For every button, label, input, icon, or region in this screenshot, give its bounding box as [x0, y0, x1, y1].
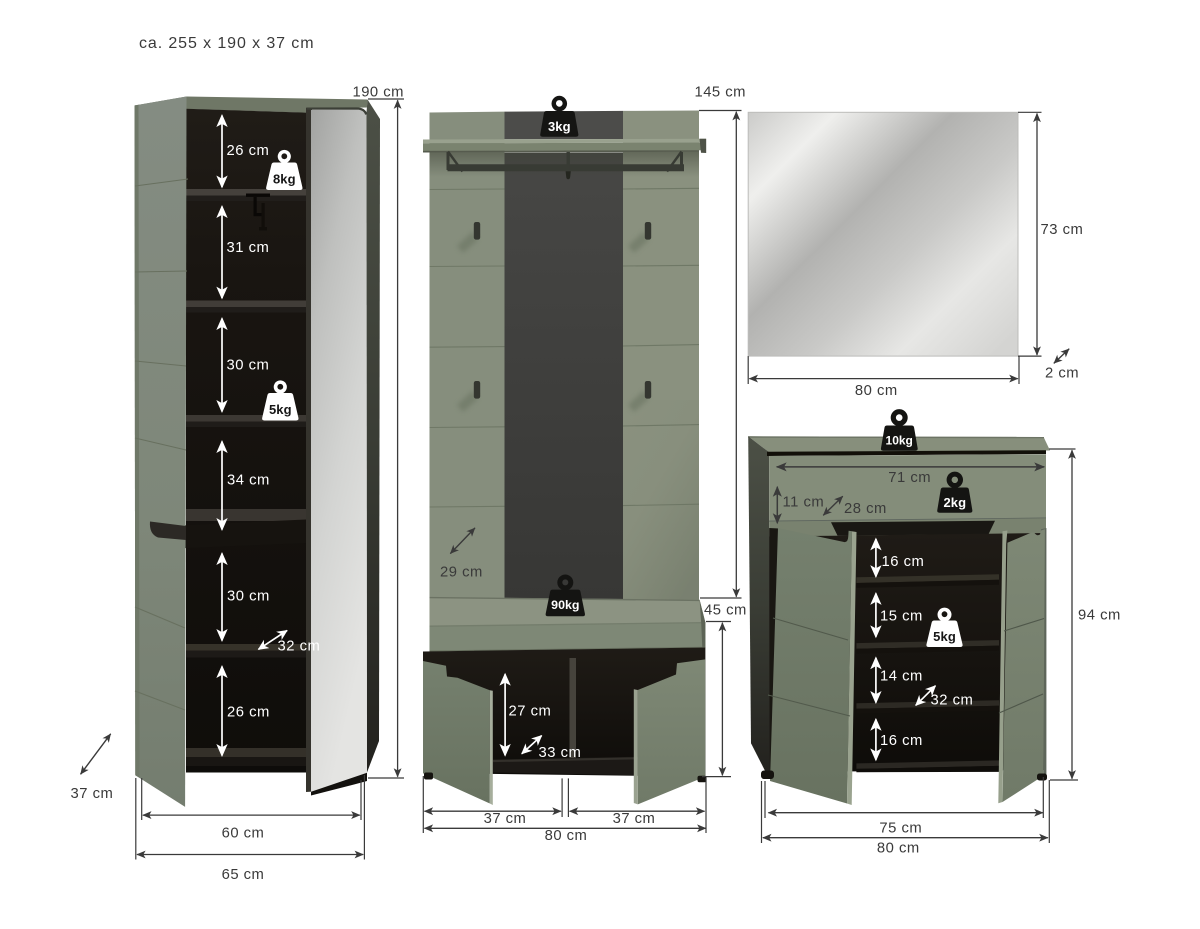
svg-text:5kg: 5kg — [269, 402, 292, 417]
svg-text:30 cm: 30 cm — [227, 589, 270, 605]
svg-text:37 cm: 37 cm — [613, 811, 656, 827]
svg-text:28 cm: 28 cm — [844, 501, 887, 517]
svg-text:33 cm: 33 cm — [539, 745, 582, 761]
svg-text:26 cm: 26 cm — [227, 705, 270, 721]
svg-text:2kg: 2kg — [943, 495, 966, 510]
svg-text:80 cm: 80 cm — [877, 841, 920, 857]
svg-text:65 cm: 65 cm — [222, 867, 265, 883]
svg-text:90kg: 90kg — [551, 598, 579, 612]
svg-text:14 cm: 14 cm — [880, 669, 923, 685]
svg-text:71 cm: 71 cm — [888, 470, 931, 486]
svg-text:ca. 255 x 190 x 37 cm: ca. 255 x 190 x 37 cm — [139, 35, 314, 52]
svg-text:15 cm: 15 cm — [880, 609, 923, 625]
svg-text:37 cm: 37 cm — [71, 786, 114, 802]
svg-text:37 cm: 37 cm — [484, 811, 527, 827]
svg-text:8kg: 8kg — [273, 172, 296, 187]
svg-text:75 cm: 75 cm — [879, 821, 922, 837]
svg-text:30 cm: 30 cm — [227, 358, 270, 374]
svg-text:94 cm: 94 cm — [1078, 608, 1121, 624]
svg-text:16 cm: 16 cm — [880, 733, 923, 749]
svg-text:5kg: 5kg — [933, 629, 956, 644]
svg-text:3kg: 3kg — [548, 119, 571, 134]
svg-text:80 cm: 80 cm — [545, 828, 588, 844]
svg-text:2 cm: 2 cm — [1045, 365, 1079, 381]
svg-text:26 cm: 26 cm — [227, 143, 270, 159]
svg-text:80 cm: 80 cm — [855, 383, 898, 399]
svg-text:45 cm: 45 cm — [704, 603, 747, 619]
svg-text:10kg: 10kg — [886, 434, 913, 448]
svg-text:31 cm: 31 cm — [227, 240, 270, 256]
svg-text:32 cm: 32 cm — [931, 693, 974, 709]
svg-text:190 cm: 190 cm — [352, 85, 404, 101]
svg-text:27 cm: 27 cm — [509, 704, 552, 720]
svg-text:73 cm: 73 cm — [1041, 222, 1084, 238]
svg-text:11 cm: 11 cm — [783, 495, 825, 511]
svg-text:145 cm: 145 cm — [694, 85, 746, 101]
svg-text:16 cm: 16 cm — [882, 554, 925, 570]
svg-text:60 cm: 60 cm — [222, 826, 265, 842]
svg-text:29 cm: 29 cm — [440, 565, 483, 581]
svg-text:32 cm: 32 cm — [278, 639, 321, 655]
svg-text:34 cm: 34 cm — [227, 473, 270, 489]
